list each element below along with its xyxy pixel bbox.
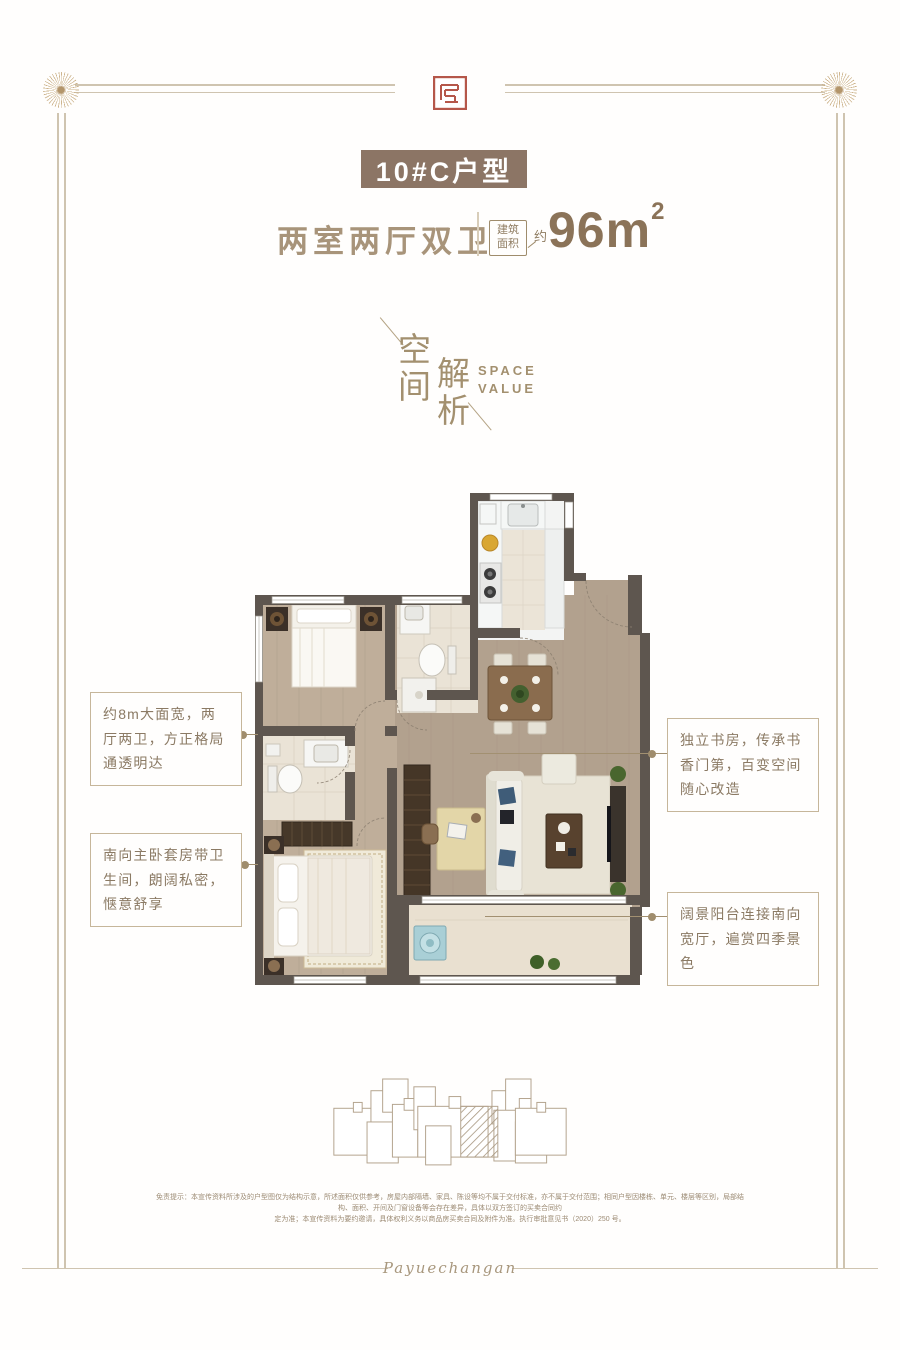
frame-right-line-2 [843, 113, 845, 1268]
section-en-line2: VALUE [478, 380, 537, 398]
subtitle-divider [477, 212, 479, 256]
callout-left-bottom: 南向主卧套房带卫生间，朗阔私密，惬意舒享 [90, 833, 242, 927]
area-exponent: 2 [651, 198, 664, 225]
section-cn-second: 解析 [437, 356, 473, 430]
area-label-top: 建筑 [497, 224, 519, 238]
brand-seal-icon [433, 76, 467, 110]
callout-left-top: 约8m大面宽，两厅两卫，方正格局通透明达 [90, 692, 242, 786]
frame-top-line-right-1 [505, 84, 825, 86]
area-label-box: 建筑 面积 [489, 220, 527, 256]
connector-right-bottom [485, 916, 667, 918]
connector-right-top [470, 753, 667, 755]
frame-top-line-left-1 [75, 84, 395, 86]
connector-dot-right-bottom [648, 913, 656, 921]
unit-title-text: 10#C户型 [376, 150, 513, 189]
poster-page: 10#C户型 两室两厅双卫 建筑 面积 约 96m2 空间 解析 SPACE V… [0, 0, 900, 1350]
layout-subtitle: 两室两厅双卫 [277, 216, 493, 261]
connector-dot-left-bottom [241, 861, 249, 869]
disclaimer: 免责提示：本宣传资料所涉及的户型图仅为结构示意，所述面积仅供参考，房屋内部隔墙、… [150, 1192, 750, 1226]
sunburst-ornament-right-icon [821, 72, 857, 108]
floor-plan [252, 488, 652, 988]
connector-dot-right-top [648, 750, 656, 758]
brand-signature: Payuechangan [0, 1259, 900, 1277]
frame-right-line-1 [836, 113, 838, 1268]
section-en-line1: SPACE [478, 362, 537, 380]
area-value: 96m2 [548, 198, 664, 259]
building-locator [328, 1070, 572, 1170]
frame-left-line-2 [64, 113, 66, 1268]
living-room-furniture [486, 754, 626, 900]
frame-left-line-1 [57, 113, 59, 1268]
frame-top-line-left-2 [75, 92, 395, 94]
area-label-bottom: 面积 [497, 238, 519, 252]
disclaimer-line2: 定为准；本宣传资料为要约邀请，具体权利义务以商品房买卖合同及附件为准。执行审批意… [150, 1214, 750, 1225]
section-cn-first: 空间 [398, 332, 434, 406]
unit-title-banner: 10#C户型 [361, 150, 527, 188]
unit-location-highlight [461, 1106, 498, 1157]
callout-right-top: 独立书房，传承书香门第，百变空间随心改造 [667, 718, 819, 812]
sunburst-ornament-left-icon [43, 72, 79, 108]
section-en-mark: SPACE VALUE [478, 362, 537, 397]
area-number: 96m [548, 202, 651, 258]
frame-top-line-right-2 [505, 92, 825, 94]
disclaimer-line1: 免责提示：本宣传资料所涉及的户型图仅为结构示意，所述面积仅供参考，房屋内部隔墙、… [150, 1192, 750, 1214]
callout-right-bottom: 阔景阳台连接南向宽厅，遍赏四季景色 [667, 892, 819, 986]
area-approx-label: 约 [534, 226, 547, 245]
